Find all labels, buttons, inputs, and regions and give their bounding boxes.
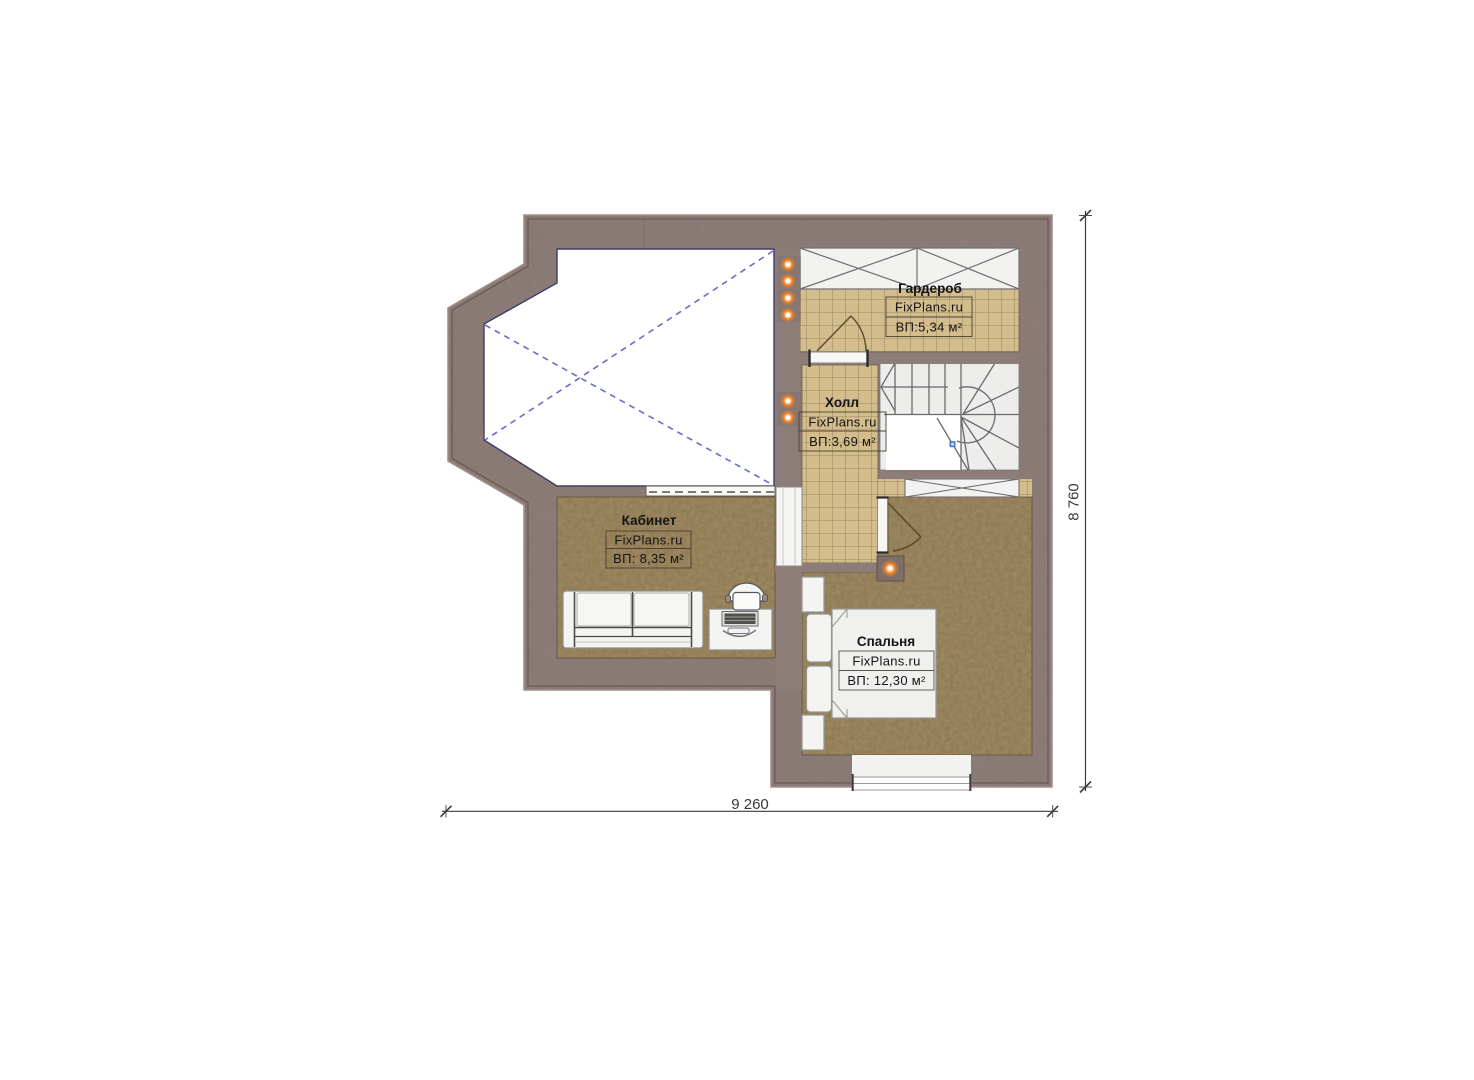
svg-text:Холл: Холл (825, 395, 859, 410)
svg-text:FixPlans.ru: FixPlans.ru (895, 300, 963, 315)
svg-text:Гардероб: Гардероб (898, 281, 962, 296)
svg-text:ВП:5,34 м²: ВП:5,34 м² (896, 320, 963, 335)
svg-text:ВП: 8,35 м²: ВП: 8,35 м² (613, 551, 684, 566)
svg-text:FixPlans.ru: FixPlans.ru (614, 533, 682, 548)
svg-text:Кабинет: Кабинет (622, 513, 677, 528)
svg-text:FixPlans.ru: FixPlans.ru (808, 415, 876, 430)
svg-text:8 760: 8 760 (1066, 483, 1083, 521)
svg-text:Спальня: Спальня (857, 634, 915, 649)
svg-text:9 260: 9 260 (731, 796, 769, 813)
svg-text:FixPlans.ru: FixPlans.ru (852, 654, 920, 669)
svg-text:ВП: 12,30 м²: ВП: 12,30 м² (847, 673, 926, 688)
svg-text:ВП:3,69 м²: ВП:3,69 м² (809, 434, 876, 449)
